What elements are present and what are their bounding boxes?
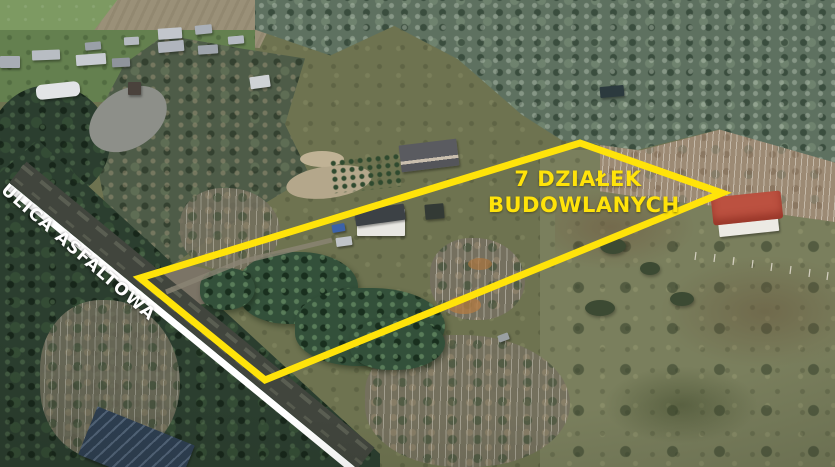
headline-line1: 7 DZIAŁEK — [488, 166, 668, 192]
fence-posts — [695, 252, 828, 280]
aerial-photo: 7 DZIAŁEK BUDOWLANYCH ULICA ASFALTOWA — [0, 0, 835, 467]
headline-label: 7 DZIAŁEK BUDOWLANYCH — [488, 166, 668, 218]
headline-line2: BUDOWLANYCH — [488, 192, 668, 218]
road-wear-stripe — [22, 166, 368, 450]
asphalt-road — [18, 172, 366, 458]
annotation-overlay — [0, 0, 835, 467]
